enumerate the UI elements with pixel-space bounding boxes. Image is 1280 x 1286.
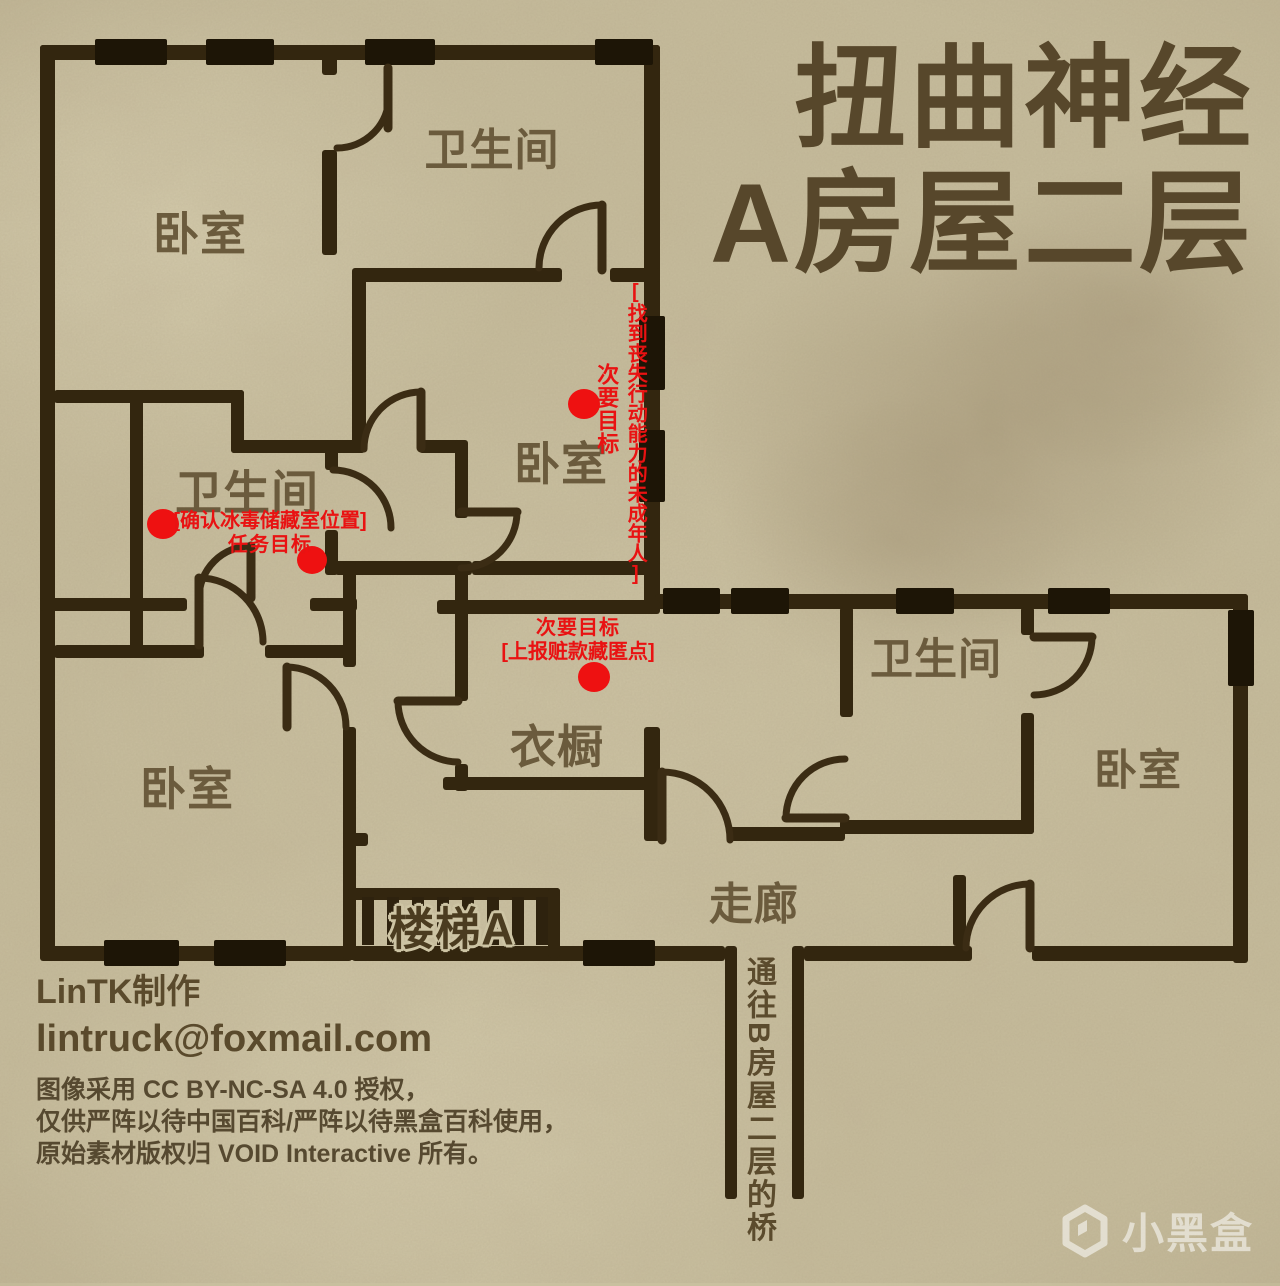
window-bottom-3: [583, 940, 655, 966]
credit-license-line2: 仅供严阵以待中国百科/严阵以待黑盒百科使用，: [36, 1106, 568, 1138]
window-top-2: [206, 39, 274, 65]
wall-bathmid-bottom-a: [54, 645, 204, 658]
door-arc-closet: [398, 701, 458, 762]
objective-money-type: 次要目标: [490, 616, 666, 640]
map-title-line2: A房屋二层: [710, 161, 1254, 286]
map-title: 扭曲神经 A房屋二层: [710, 36, 1254, 287]
credit-email: lintruck@foxmail.com: [36, 1017, 568, 1063]
wall-hall-right-upper: [352, 269, 366, 449]
objective-money-text: [上报赃款藏匿点]: [490, 640, 666, 664]
window-rtop-1: [663, 588, 720, 614]
window-bottom-2: [214, 940, 286, 966]
door-arc-bathtop-exit: [539, 205, 602, 268]
objective-rescue: [找到丧失行动能力的未成年人] 次要目标: [594, 281, 646, 551]
door-arc-bedtc: [461, 512, 517, 568]
credit-license-line1: 图像采用 CC BY-NC-SA 4.0 授权，: [36, 1074, 568, 1106]
window-rtop-3: [896, 588, 954, 614]
bridge-note: 通往B房屋二层的桥: [736, 956, 780, 1286]
wall-closet-top: [437, 600, 660, 614]
window-rtop-2: [731, 588, 789, 614]
wall-closet-left-a: [455, 600, 468, 701]
room-label-corridor: 走廊: [709, 868, 799, 932]
wall-bathtop-bottom-a: [352, 268, 562, 282]
window-top-3: [365, 39, 435, 65]
objective-meth: [确认冰毒储藏室位置] 任务目标: [170, 509, 370, 558]
door-arc-bathtop-entry: [337, 96, 389, 148]
room-label-bathroom-top: 卫生间: [425, 114, 560, 178]
credit-author: LinTK制作: [36, 972, 568, 1013]
objective-rescue-type: 次要目标: [594, 281, 623, 551]
credit-license-line3: 原始素材版权归 VOID Interactive 所有。: [36, 1138, 568, 1170]
wall-bedbl-right-a: [343, 561, 356, 667]
wall-hall-top-a: [231, 440, 365, 453]
wall-bottom-left: [40, 946, 352, 961]
window-bottom-1: [104, 940, 179, 966]
window-top-4: [595, 39, 653, 65]
wall-bathmid-bottom-b: [265, 645, 348, 658]
wall-p1b: [322, 150, 337, 255]
room-label-bedroom-right: 卧室: [1094, 736, 1182, 798]
wall-p1a: [322, 45, 337, 75]
watermark-label: 小黑盒: [1122, 1200, 1254, 1261]
credit-license: 图像采用 CC BY-NC-SA 4.0 授权， 仅供严阵以待中国百科/严阵以待…: [36, 1074, 568, 1170]
door-arc-bathr-right: [1034, 637, 1092, 695]
wall-left-outer: [40, 45, 55, 960]
room-label-bedroom-tl: 卧室: [153, 198, 247, 264]
wall-bathmid-top: [54, 390, 244, 403]
credits-block: LinTK制作 lintruck@foxmail.com 图像采用 CC BY-…: [36, 972, 568, 1170]
window-rtop-4: [1048, 588, 1110, 614]
wall-bathmid-step: [231, 390, 244, 453]
wall-bottom-right: [1032, 946, 1248, 961]
heybox-logo-icon: [1058, 1204, 1112, 1258]
door-arc-bathr-left: [786, 759, 845, 818]
wall-corridor-stub: [343, 833, 368, 846]
wall-bathr-right-a: [1021, 607, 1034, 635]
room-label-bedroom-bl: 卧室: [140, 753, 234, 819]
door-arc-corridor: [662, 772, 730, 840]
objective-meth-type: 任务目标: [170, 533, 370, 557]
wall-corridor-top: [728, 827, 845, 841]
wall-bathr-bottom: [840, 820, 1034, 834]
wall-stairs-right: [548, 888, 560, 958]
wall-closet-bottom: [443, 777, 660, 790]
marker-money: [578, 662, 610, 692]
objective-money: 次要目标 [上报赃款藏匿点]: [490, 616, 666, 665]
wall-bedtc-left-a: [455, 440, 468, 518]
watermark: 小黑盒: [1058, 1200, 1254, 1261]
wall-bathr-left: [840, 607, 853, 717]
room-label-stairs: 楼梯A: [389, 893, 515, 958]
room-label-bathroom-right: 卫生间: [870, 625, 1002, 687]
window-top-1: [95, 39, 167, 65]
floorplan-page: { "title": {"line1": "扭曲神经", "line2": "A…: [0, 0, 1280, 1283]
wall-bathmid-right-a: [325, 440, 338, 470]
window-right-1: [1228, 610, 1254, 686]
wall-bottom-mid2: [804, 946, 972, 961]
wall-bedbl-top-a: [40, 598, 187, 611]
wall-bathr-right-b: [1021, 713, 1034, 834]
door-arc-bedr: [966, 884, 1030, 948]
objective-meth-text: [确认冰毒储藏室位置]: [170, 509, 370, 533]
wall-bathtop-bottom-b: [610, 268, 660, 282]
door-arc-bedbl-right: [287, 667, 346, 727]
map-title-line1: 扭曲神经: [710, 36, 1254, 161]
wall-bridge-right: [792, 946, 804, 1199]
room-label-closet: 衣橱: [510, 711, 604, 777]
door-arc-hall-top: [364, 392, 421, 449]
objective-rescue-text: [找到丧失行动能力的未成年人]: [623, 281, 646, 551]
